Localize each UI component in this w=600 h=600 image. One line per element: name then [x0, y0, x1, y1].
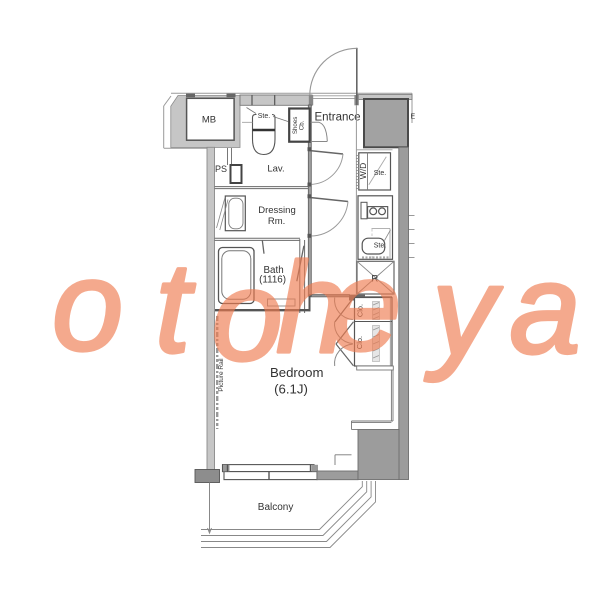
svg-text:Balcony: Balcony [258, 502, 294, 513]
svg-text:Lav.: Lav. [267, 164, 284, 175]
svg-text:MB: MB [202, 115, 216, 126]
svg-text:Ste.: Ste. [258, 113, 271, 120]
svg-text:Ste.: Ste. [374, 170, 387, 177]
svg-text:Cb.: Cb. [299, 120, 306, 130]
svg-text:PS: PS [215, 164, 227, 174]
svg-text:Entrance: Entrance [314, 111, 360, 123]
svg-text:E: E [411, 114, 416, 121]
svg-text:W/D: W/D [358, 163, 368, 180]
svg-text:Rm.: Rm. [268, 216, 285, 227]
svg-text:Dressing: Dressing [258, 205, 296, 216]
